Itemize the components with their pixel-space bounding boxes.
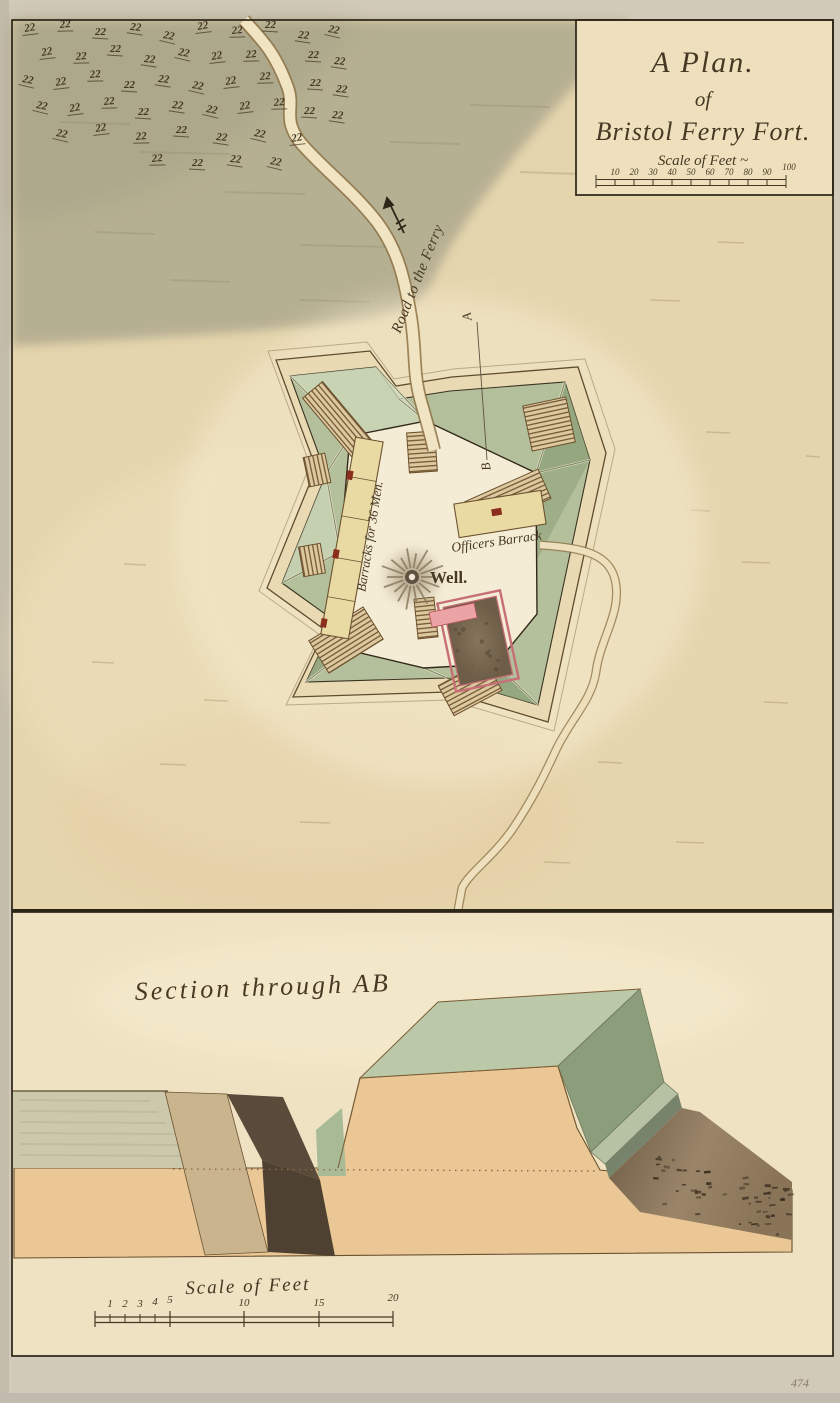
field-dash xyxy=(204,700,228,701)
svg-text:22: 22 xyxy=(94,26,107,38)
strip-streak xyxy=(20,1155,190,1156)
scale-tick-label: 50 xyxy=(687,167,697,177)
scale-tick-label: 4 xyxy=(152,1296,158,1308)
fort: Barracks for 36 Men. Officers Barrack xyxy=(175,295,705,785)
svg-text:22: 22 xyxy=(215,131,228,144)
ground-speckle xyxy=(771,1214,775,1217)
svg-text:22: 22 xyxy=(74,50,87,63)
ground-speckle xyxy=(672,1159,675,1162)
ground-speckle xyxy=(768,1197,770,1199)
scale-tick-label: 30 xyxy=(648,167,659,177)
plan-panel: Barracks for 36 Men. Officers Barrack xyxy=(10,18,833,930)
tree-icon: 22 xyxy=(173,124,189,137)
section-scale-label: Scale of Feet xyxy=(185,1274,311,1299)
scale-tick-label: 1 xyxy=(107,1298,113,1310)
page-left-edge xyxy=(0,0,9,1403)
svg-text:22: 22 xyxy=(331,109,344,122)
field-dash xyxy=(742,562,770,563)
field-dash xyxy=(676,842,704,843)
strip-streak xyxy=(20,1144,182,1145)
field-dash xyxy=(598,762,622,763)
svg-text:22: 22 xyxy=(191,157,204,169)
svg-text:22: 22 xyxy=(309,77,322,89)
tree-icon: 22 xyxy=(135,106,151,119)
ground-speckle xyxy=(676,1169,681,1172)
page-bottom-edge xyxy=(0,1393,840,1403)
scale-tick-label: 100 xyxy=(782,162,796,172)
svg-text:22: 22 xyxy=(175,124,188,136)
svg-text:22: 22 xyxy=(88,68,101,81)
svg-text:22: 22 xyxy=(150,152,163,165)
scale-tick-label: 70 xyxy=(725,167,735,177)
title-cartouche: A Plan. of Bristol Ferry Fort. Scale of … xyxy=(576,20,833,195)
svg-text:22: 22 xyxy=(333,55,346,68)
ground-speckle xyxy=(768,1191,771,1194)
ground-speckle xyxy=(755,1201,761,1203)
scale-tick-label: 3 xyxy=(136,1298,143,1310)
scale-tick-label: 20 xyxy=(630,167,640,177)
strip-streak xyxy=(20,1122,166,1123)
svg-text:22: 22 xyxy=(303,105,316,117)
scale-tick-label: 60 xyxy=(706,167,716,177)
plan-sheet: Barracks for 36 Men. Officers Barrack xyxy=(0,0,840,1403)
svg-text:22: 22 xyxy=(137,106,150,118)
field-dash xyxy=(718,242,744,243)
well-label: Well. xyxy=(430,568,467,587)
ground-speckle xyxy=(653,1177,659,1180)
field-dash xyxy=(706,432,730,433)
svg-text:22: 22 xyxy=(297,29,310,42)
svg-text:22: 22 xyxy=(229,153,242,166)
svg-text:22: 22 xyxy=(129,21,142,34)
svg-text:22: 22 xyxy=(109,43,122,55)
ground-speckle xyxy=(772,1187,778,1189)
section-panel: Section through AB xyxy=(12,912,833,1356)
tree-icon: 22 xyxy=(92,26,108,39)
ground-speckle xyxy=(702,1193,706,1196)
scale-tick-label: 20 xyxy=(388,1292,400,1304)
scale-tick-label: 10 xyxy=(239,1297,251,1309)
tree-icon: 22 xyxy=(305,49,321,62)
plan-title-line3: Bristol Ferry Fort. xyxy=(596,117,811,146)
scale-tick-label: 80 xyxy=(744,167,754,177)
svg-text:22: 22 xyxy=(244,48,257,61)
field-dash xyxy=(160,764,186,765)
svg-text:22: 22 xyxy=(171,99,184,112)
svg-text:22: 22 xyxy=(272,96,285,109)
field-dash xyxy=(806,456,820,457)
ground-speckle xyxy=(661,1169,665,1172)
tree-icon: 22 xyxy=(307,77,323,90)
ground-speckle xyxy=(676,1190,679,1192)
ground-speckle xyxy=(780,1199,785,1201)
ground-speckle xyxy=(748,1222,751,1224)
svg-text:22: 22 xyxy=(102,95,115,108)
strip-streak xyxy=(20,1100,150,1101)
scale-tick-label: 90 xyxy=(763,167,773,177)
svg-text:22: 22 xyxy=(143,53,156,66)
ground-speckle xyxy=(698,1191,701,1194)
scale-tick-label: 40 xyxy=(668,167,678,177)
scale-tick-label: 2 xyxy=(122,1298,128,1310)
ground-speckle xyxy=(765,1184,771,1187)
ground-speckle xyxy=(696,1170,700,1172)
strip-streak xyxy=(20,1133,174,1134)
catalog-number: 474 xyxy=(791,1376,809,1390)
tree-icon: 22 xyxy=(121,79,137,92)
tree-icon: 22 xyxy=(301,105,317,118)
field-dash xyxy=(92,662,114,663)
ground-speckle xyxy=(739,1223,741,1225)
tree-icon: 22 xyxy=(189,157,205,170)
tree-icon: 22 xyxy=(262,19,278,32)
scale-tick-label: 10 xyxy=(611,167,621,177)
tree-icon: 22 xyxy=(107,43,123,56)
field-dash xyxy=(300,822,330,823)
plan-title-line1: A Plan. xyxy=(649,46,754,79)
svg-text:22: 22 xyxy=(258,70,271,83)
svg-text:22: 22 xyxy=(307,49,320,61)
strip-streak xyxy=(20,1111,158,1112)
ground-speckle xyxy=(707,1182,709,1184)
ground-speckle xyxy=(757,1224,760,1226)
ground-speckle xyxy=(765,1223,771,1225)
ground-speckle xyxy=(683,1169,687,1171)
map-sheet: Barracks for 36 Men. Officers Barrack xyxy=(0,0,840,1403)
ramp xyxy=(299,543,326,576)
field-dash xyxy=(764,702,788,703)
svg-text:22: 22 xyxy=(134,130,147,143)
scale-tick-label: 15 xyxy=(314,1297,326,1309)
field-dash xyxy=(650,300,680,301)
ground-speckle xyxy=(749,1203,751,1205)
ground-speckle xyxy=(754,1196,758,1199)
svg-text:22: 22 xyxy=(335,83,348,96)
svg-text:22: 22 xyxy=(157,73,170,86)
ground-speckle xyxy=(776,1233,779,1236)
ground-speckle xyxy=(784,1190,786,1192)
scale-tick-label: 5 xyxy=(167,1294,173,1306)
svg-text:22: 22 xyxy=(230,24,243,37)
svg-text:22: 22 xyxy=(123,79,136,91)
field-dash xyxy=(124,564,146,565)
ground-speckle xyxy=(696,1196,701,1198)
field-dash xyxy=(544,862,570,863)
ramp xyxy=(523,397,576,451)
